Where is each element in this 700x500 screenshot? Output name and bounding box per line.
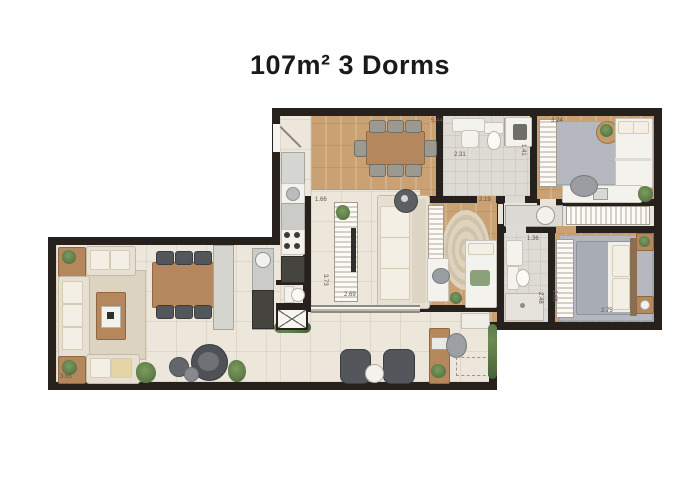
peninsula-sink-icon <box>255 252 271 268</box>
lounge-chair-icon <box>383 349 415 384</box>
floor-plan-image: 107m² 3 Dorms <box>0 0 700 500</box>
sofa-pillow-icon <box>111 358 132 378</box>
pouf-icon <box>184 367 199 382</box>
shower-bench-icon <box>513 124 527 140</box>
pillow-icon <box>633 121 649 134</box>
optional-area-outline <box>456 357 491 376</box>
plant-icon <box>639 236 650 247</box>
bath2-sink-icon <box>506 240 523 266</box>
bedroom3-door-opening <box>556 226 576 233</box>
sofa-cushion-icon <box>62 304 83 327</box>
wall-top <box>272 108 662 116</box>
wall-right <box>654 108 662 330</box>
shower-drain-icon <box>520 303 525 308</box>
pillow-icon <box>618 121 634 134</box>
terrace-table-icon <box>365 364 384 383</box>
plant-icon <box>62 360 77 375</box>
dim-living-depth: 3.73 <box>321 274 328 286</box>
dim-bath1-depth: 1.41 <box>519 144 526 156</box>
stove-burner-icon <box>284 243 290 249</box>
sofa-cushion-icon <box>90 358 111 378</box>
plant-icon <box>136 362 156 383</box>
dining-chair-icon <box>156 251 174 265</box>
sofa-cushion-icon <box>380 237 410 269</box>
dining-chair-icon <box>405 164 422 177</box>
dining-chair-icon <box>194 251 212 265</box>
sofa-cushion-icon <box>62 281 83 304</box>
toilet-bowl-icon <box>516 269 530 287</box>
kitchen-counter-icon <box>281 203 305 231</box>
decor-icon <box>401 195 408 202</box>
toilet-bowl-icon <box>487 131 501 150</box>
dining-chair-icon <box>387 120 404 133</box>
plant-icon <box>431 364 446 378</box>
wardrobe-bedroom2-icon <box>428 205 444 259</box>
plant-icon <box>450 292 462 304</box>
throw-blanket-icon <box>470 270 490 286</box>
pillow-icon <box>612 278 630 310</box>
hedge-icon <box>488 324 497 379</box>
dining-chair-icon <box>369 164 386 177</box>
bath1-sink-icon <box>461 130 479 148</box>
wall-bath1-left <box>436 116 443 200</box>
dining-table-icon <box>366 131 425 165</box>
sofa-cushion-icon <box>90 250 110 270</box>
dim-balcony-width: 3.55 <box>60 374 72 381</box>
bath1-door-opening <box>505 196 525 203</box>
dining-chair-icon <box>194 305 212 319</box>
entry-door-opening <box>273 124 280 152</box>
bedroom1-door-opening <box>540 199 556 206</box>
dining-chair-icon <box>175 305 193 319</box>
kitchen-cabinet-icon <box>281 152 305 185</box>
plant-icon <box>62 250 76 264</box>
laundry-opening <box>498 204 503 224</box>
plant-icon <box>600 124 613 137</box>
office-chair-icon <box>446 333 467 358</box>
sofa-backrest-icon <box>412 199 426 303</box>
wardrobe-bedroom1-icon <box>539 119 557 187</box>
decor-icon <box>107 312 114 319</box>
wall-bottom-bedrooms <box>497 322 662 330</box>
dim-bedroom2-width: 2.19 <box>479 197 491 204</box>
wc-toilet-bowl-icon <box>291 288 305 302</box>
drying-rack-icon <box>566 206 650 225</box>
laundry-sink-icon <box>536 206 555 225</box>
dining-chair-icon <box>354 140 367 157</box>
sofa-cushion-icon <box>110 250 130 270</box>
oven-icon <box>281 256 305 283</box>
wall-bath2-right <box>548 226 555 322</box>
dining-chair-icon <box>156 305 174 319</box>
kitchen-sink-bowl-icon <box>286 187 300 201</box>
wall-left-lower <box>48 237 56 390</box>
dim-living-width: 2.69 <box>344 292 356 299</box>
stove-burner-icon <box>294 243 300 249</box>
pillow-icon <box>468 243 494 255</box>
dim-bedroom3-width: 2.75 <box>601 308 613 315</box>
stove-burner-icon <box>294 232 300 238</box>
shaft-box <box>276 308 308 330</box>
lamp-icon <box>640 300 650 310</box>
office-chair-icon <box>432 268 450 284</box>
dining-chair-icon <box>175 251 193 265</box>
island-counter-icon <box>213 245 234 330</box>
stove-burner-icon <box>284 232 290 238</box>
dining-table-2-icon <box>152 262 214 308</box>
plant-icon <box>228 360 246 382</box>
dim-bath2-width: 1.36 <box>527 236 539 243</box>
dining-chair-icon <box>369 120 386 133</box>
round-armchair-seat-icon <box>198 352 219 371</box>
dim-kitchen-width: 1.66 <box>315 197 327 204</box>
tv-icon <box>351 228 356 272</box>
duvet-fold-icon <box>615 158 651 161</box>
dim-dining-width: 5.44 <box>431 118 443 125</box>
sofa-cushion-icon <box>380 268 410 300</box>
peninsula-cabinet-icon <box>252 290 274 329</box>
dim-bedroom3-depth: 2.68 <box>550 290 557 302</box>
living-sliding-door <box>311 305 420 313</box>
plant-icon <box>336 205 350 220</box>
wardrobe-bedroom3-icon <box>556 239 574 318</box>
plan-title: 107m² 3 Dorms <box>0 50 700 81</box>
pillow-icon <box>612 245 630 277</box>
dim-bath2-depth: 2.48 <box>536 292 543 304</box>
bath2-door-opening <box>506 226 526 233</box>
office-chair-icon <box>570 175 598 197</box>
sofa-cushion-icon <box>62 327 83 350</box>
plant-icon <box>638 186 653 202</box>
dining-chair-icon <box>387 164 404 177</box>
dining-chair-icon <box>424 140 437 157</box>
dining-chair-icon <box>405 120 422 133</box>
terrace-cabinet-icon <box>461 313 490 329</box>
dim-bedroom1-width: 3.24 <box>551 118 563 125</box>
dim-bath1-width: 2.31 <box>454 152 466 159</box>
wall-top-extension <box>48 237 280 245</box>
